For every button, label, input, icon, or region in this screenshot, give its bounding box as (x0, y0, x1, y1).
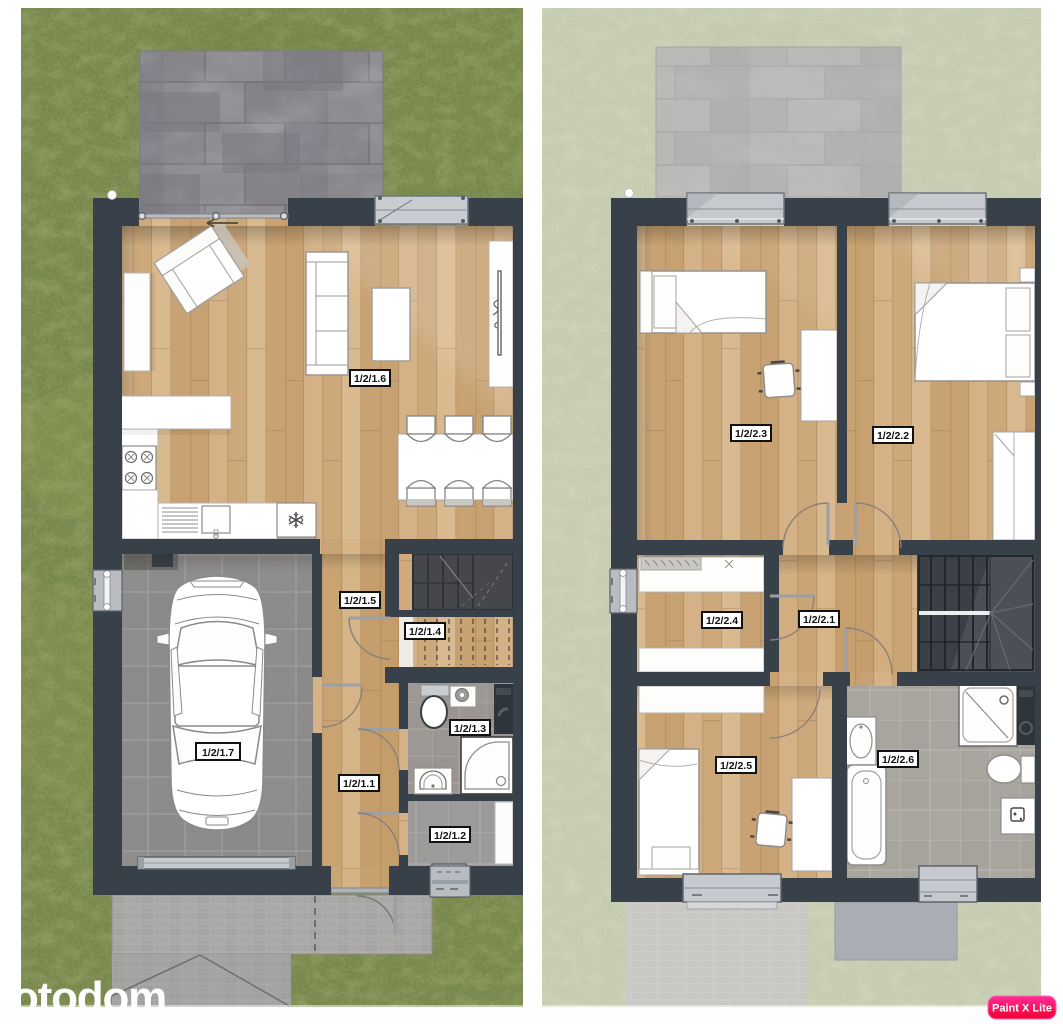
svg-text:1/2/1.4: 1/2/1.4 (409, 626, 441, 638)
svg-text:1/2/1.5: 1/2/1.5 (344, 595, 376, 607)
svg-text:1/2/1.3: 1/2/1.3 (454, 723, 486, 735)
svg-text:Paint X Lite: Paint X Lite (992, 1003, 1052, 1015)
svg-text:1/2/2.6: 1/2/2.6 (882, 754, 914, 766)
svg-text:1/2/1.1: 1/2/1.1 (343, 778, 375, 790)
svg-text:1/2/1.7: 1/2/1.7 (202, 747, 234, 759)
svg-text:1/2/2.4: 1/2/2.4 (706, 615, 738, 627)
svg-text:1/2/2.3: 1/2/2.3 (735, 428, 767, 440)
svg-text:1/2/1.2: 1/2/1.2 (434, 830, 466, 842)
svg-text:1/2/2.2: 1/2/2.2 (877, 430, 909, 442)
svg-text:1/2/2.1: 1/2/2.1 (803, 614, 835, 626)
svg-text:1/2/1.6: 1/2/1.6 (354, 373, 386, 385)
svg-text:1/2/2.5: 1/2/2.5 (720, 760, 752, 772)
